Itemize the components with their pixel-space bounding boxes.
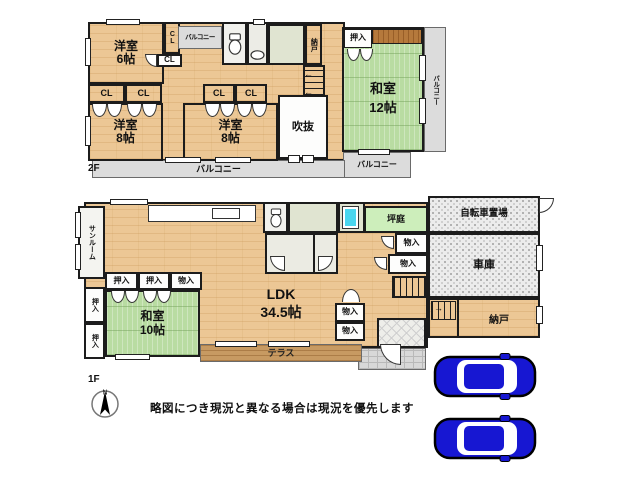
wall (313, 233, 315, 274)
window (536, 306, 543, 324)
storage-label: 物入 (342, 308, 358, 317)
room-size: 10帖 (140, 324, 165, 337)
room-name: 坪庭 (387, 214, 405, 224)
closet-label: CL (101, 88, 113, 98)
storage-label: 押入 (91, 298, 99, 312)
storage-mono: 物入 (170, 272, 202, 290)
room-name: LDK (200, 286, 362, 302)
window (215, 341, 257, 347)
window (419, 98, 426, 124)
terrace-label: テラス (268, 348, 295, 358)
storage-label: 物入 (404, 239, 420, 248)
window (85, 116, 91, 146)
closet-label: CL (168, 31, 176, 45)
room-size: 12帖 (342, 97, 424, 116)
window (115, 354, 150, 360)
window (215, 157, 251, 163)
compass-icon: N (88, 386, 122, 420)
storage-label: 押入 (91, 334, 99, 348)
room-japanese-12-label: 和室 12帖 (342, 78, 424, 116)
closet-label: CL (213, 88, 225, 98)
car-icon (433, 353, 537, 400)
f2-toilet-room (222, 22, 247, 65)
sink-icon (250, 50, 265, 60)
storage-oshiire: 押入 (84, 323, 105, 359)
storage-oshiire: 押入 (84, 287, 105, 323)
closet-small: CL (157, 54, 182, 67)
room-name: 洋室 (114, 40, 138, 53)
balcony-label: バルコニー (196, 164, 241, 174)
f1-toilet-room (263, 202, 288, 233)
balcony-label: バルコニー (357, 161, 397, 170)
room-name: 洋室 (113, 119, 137, 132)
f2-balcony-top: バルコニー (178, 26, 222, 49)
stairs-arrow: ← (304, 69, 313, 79)
window (165, 157, 201, 163)
disclaimer-text: 略図につき現況と異なる場合は現況を優先します (150, 400, 414, 416)
compass-north-label: N (102, 390, 107, 397)
room-name: 和室 (342, 78, 424, 97)
garage: 車庫 (428, 233, 540, 298)
window (110, 199, 148, 205)
balcony-label: バルコニー (185, 34, 215, 41)
tokonoma (372, 29, 422, 44)
room-tsubo-garden: 坪庭 (364, 206, 428, 233)
closet: CL (125, 84, 162, 103)
window (419, 55, 426, 81)
floor2-label: 2F (88, 163, 100, 174)
room-void-fukinuke: 吹抜 (278, 95, 328, 159)
toilet-icon (269, 206, 283, 230)
f2-balcony-right: バルコニー (424, 27, 446, 152)
balcony-label: バルコニー (431, 75, 438, 105)
toilet-icon (227, 31, 243, 57)
window (302, 155, 314, 163)
f1-washroom (288, 202, 338, 233)
f2-oshiire: 押入 (344, 29, 372, 48)
storage-mono: 物入 (335, 322, 365, 341)
closet: CL (203, 84, 235, 103)
floor1-label: 1F (88, 374, 100, 385)
closet-label: CL (138, 88, 150, 98)
room-size: 8帖 (221, 132, 240, 145)
window (358, 149, 390, 155)
closet-label: CL (245, 88, 257, 98)
room-name: 自転車置場 (460, 209, 508, 220)
storage-label: 物入 (178, 277, 194, 286)
storage-label: 物入 (400, 260, 416, 269)
storage-nando-label: 納戸 (458, 311, 540, 326)
window (288, 155, 300, 163)
room-name: 和室 (140, 310, 164, 323)
window (536, 245, 543, 271)
storage-label: 押入 (114, 277, 130, 286)
stairs-arrow: → (434, 303, 443, 313)
floor-plan: バルコニー バルコニー バルコニー 洋室 6帖 CL CL バルコニー 納戸 ←… (0, 0, 640, 480)
room-name: 車庫 (473, 259, 495, 271)
room-size: 8帖 (116, 132, 135, 145)
room-name: 吹抜 (292, 121, 314, 133)
window (106, 19, 140, 25)
f2-balcony-southeast: バルコニー (343, 152, 411, 178)
window (268, 341, 310, 347)
closet-label: 押入 (350, 34, 366, 43)
storage-mono: 物入 (395, 233, 428, 254)
window (85, 38, 91, 66)
closet: CL (235, 84, 267, 103)
storage-mono: 物入 (388, 254, 428, 274)
kitchen-sink (212, 208, 240, 219)
room-name: サンルーム (88, 225, 96, 260)
car-icon (433, 415, 537, 462)
room-name: 洋室 (218, 119, 242, 132)
bathtub-icon (342, 206, 359, 229)
f2-washroom (247, 22, 268, 65)
f1-stairs (392, 276, 426, 298)
bicycle-parking: 自転車置場 (428, 196, 540, 233)
storage-mono: 物入 (335, 303, 365, 322)
window (253, 19, 265, 25)
storage-label: 納戸 (310, 38, 318, 52)
storage-label: 押入 (146, 277, 162, 286)
room-sunroom: サンルーム (78, 206, 105, 279)
window (75, 244, 81, 270)
storage-oshiire: 押入 (105, 272, 138, 290)
closet: CL (88, 84, 125, 103)
room-western-6: 洋室 6帖 (88, 22, 164, 84)
storage-label: 物入 (342, 327, 358, 336)
closet-label: CL (164, 56, 175, 65)
f2-bathroom (268, 24, 305, 65)
f1-bathroom (338, 202, 365, 233)
room-size: 6帖 (117, 53, 136, 66)
f2-storage-nando: 納戸 (305, 24, 322, 65)
door-arc (539, 198, 554, 213)
storage-oshiire: 押入 (138, 272, 170, 290)
window (75, 212, 81, 238)
